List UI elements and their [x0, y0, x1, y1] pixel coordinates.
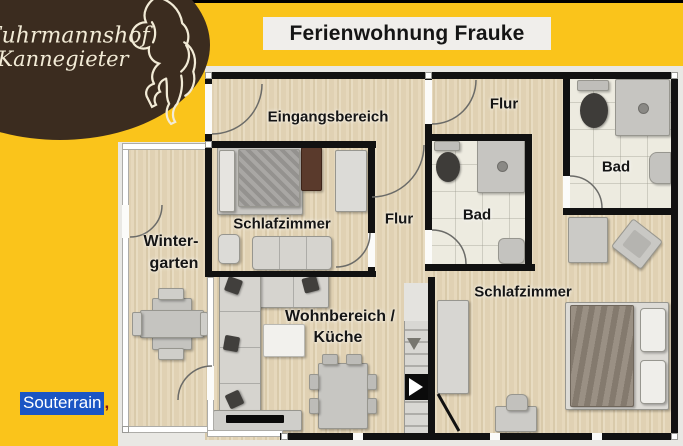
dining-chair	[367, 374, 377, 390]
room-label-wintergarten-2: garten	[150, 255, 199, 273]
staircase-landing	[404, 283, 428, 321]
staircase-arrow-icon	[409, 378, 423, 396]
room-label-wintergarten-1: Winter-	[144, 233, 199, 251]
dining-chair	[309, 374, 319, 390]
wall-outer-right	[671, 72, 678, 440]
door-gap-entry	[205, 84, 212, 134]
coffee-table	[263, 324, 305, 357]
wintergarten-chair	[132, 312, 142, 336]
bed-1-pillows	[219, 150, 235, 212]
souterrain-selection[interactable]: Souterrain,	[20, 393, 109, 413]
selection-suffix: ,	[104, 393, 109, 412]
wall-badmid-top	[425, 134, 532, 141]
cabinet	[568, 217, 608, 263]
sofa-bedroom1	[252, 236, 332, 270]
door-gap-entry-flur	[425, 80, 432, 124]
toilet-cistern	[577, 80, 609, 91]
room-label-flur-top: Flur	[490, 96, 518, 113]
shower-drain-icon	[638, 103, 649, 114]
wall-joint	[425, 72, 432, 79]
door-gap-wintergarten-living	[207, 366, 214, 400]
dining-chair	[367, 398, 377, 414]
page: Eingangsbereich Flur Bad Schlafzimmer Fl…	[0, 0, 683, 446]
wall-outer-top	[205, 72, 678, 79]
tv	[226, 415, 284, 423]
wall-joint	[122, 426, 129, 433]
page-title: Ferienwohnung Frauke	[289, 22, 524, 46]
room-label-bad-middle: Bad	[463, 207, 491, 224]
wall-badmid-bottom	[425, 264, 535, 271]
window-gap-bottom	[592, 433, 602, 440]
sink	[649, 152, 671, 184]
dining-chair	[346, 354, 362, 365]
room-label-wohnbereich-2: Küche	[314, 329, 363, 347]
room-label-eingangsbereich: Eingangsbereich	[268, 109, 389, 126]
dresser-1	[335, 150, 367, 212]
dining-chair	[322, 354, 338, 365]
wintergarten-window-left	[122, 143, 129, 433]
bed-2-pillow	[640, 360, 666, 404]
throw-pillow	[223, 335, 240, 352]
room-label-schlafzimmer-right: Schlafzimmer	[474, 284, 572, 301]
wardrobe-brown	[301, 147, 322, 191]
selected-text[interactable]: Souterrain	[20, 392, 104, 415]
wall-joint	[671, 433, 678, 440]
toilet	[436, 152, 460, 182]
wall-bedroom1-bottom	[205, 271, 376, 277]
wall-joint	[205, 141, 212, 148]
wall-stairs-right	[428, 277, 435, 433]
room-label-bad-right: Bad	[602, 159, 630, 176]
wall-joint	[205, 72, 212, 79]
room-label-flur-middle: Flur	[385, 211, 413, 228]
door-gap-bedroom1	[368, 233, 375, 267]
wardrobe-2	[437, 300, 469, 394]
bed-1-blanket	[238, 149, 300, 207]
wintergarten-partition	[207, 277, 214, 433]
dining-table	[318, 363, 368, 429]
wintergarten-window-top	[122, 143, 212, 150]
shower-drain-icon	[497, 161, 508, 172]
toilet	[580, 93, 608, 128]
wall-joint	[281, 433, 288, 440]
page-title-box: Ferienwohnung Frauke	[263, 17, 551, 50]
door-gap-badmid	[425, 230, 432, 264]
sink	[498, 238, 525, 264]
wall-bedroom1-top	[205, 141, 376, 148]
door-gap-badright	[563, 176, 570, 208]
wintergarten-chair	[158, 348, 184, 360]
toilet-cistern	[434, 141, 460, 151]
wintergarten-chair	[158, 288, 184, 300]
wintergarten-table	[140, 310, 204, 338]
wall-outer-bottom	[280, 433, 678, 440]
nightstand-1	[218, 234, 240, 264]
logo-line2: Kannegieter	[0, 47, 129, 71]
door-gap-wintergarten-left	[122, 205, 129, 238]
wall-badright-bottom	[563, 208, 678, 215]
wall-wintergarten-bedroom1	[205, 141, 212, 277]
bed-2-pillow	[640, 308, 666, 352]
logo-line1: Fuhrmannshof	[0, 24, 150, 49]
room-label-wohnbereich-1: Wohnbereich /	[285, 308, 395, 326]
window-gap-bottom	[353, 433, 363, 440]
wall-badmid-right	[525, 134, 532, 271]
window-gap-bottom	[490, 433, 500, 440]
dining-chair	[309, 398, 319, 414]
wall-joint	[671, 72, 678, 79]
wintergarten-window-bottom	[122, 426, 212, 433]
bed-2-blanket	[570, 305, 634, 407]
living-window-bottom	[207, 430, 283, 437]
room-label-schlafzimmer-left: Schlafzimmer	[233, 216, 331, 233]
desk-chair	[506, 394, 528, 411]
